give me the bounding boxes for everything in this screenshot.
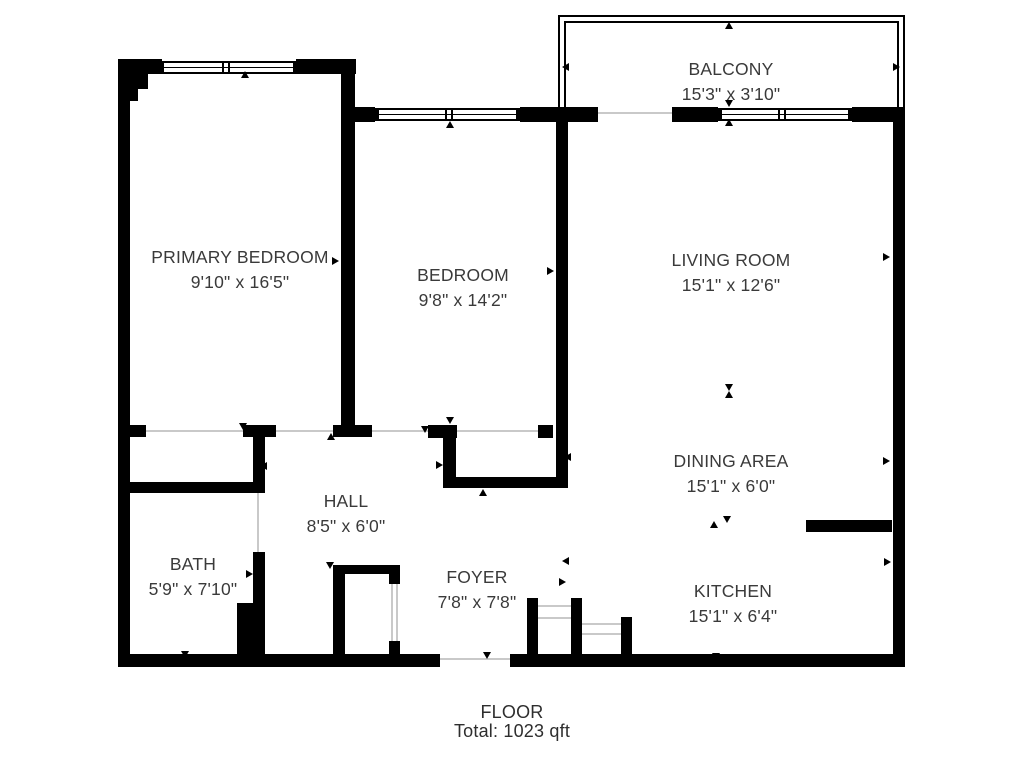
room-name: PRIMARY BEDROOM xyxy=(151,245,328,270)
room-label-primary-bedroom: PRIMARY BEDROOM9'10" x 16'5" xyxy=(151,245,328,295)
door-opening-line xyxy=(440,658,510,660)
door-opening-line xyxy=(396,584,398,641)
room-dimensions: 15'1" x 12'6" xyxy=(672,273,791,298)
window xyxy=(375,108,520,121)
dimension-arrow-left xyxy=(121,257,128,265)
wall-segment xyxy=(571,598,582,660)
window-glass-line xyxy=(378,114,517,116)
window-end-post xyxy=(376,110,379,119)
room-label-bath: BATH5'9" x 7'10" xyxy=(149,552,238,602)
room-dimensions: 5'9" x 7'10" xyxy=(149,577,238,602)
room-dimensions: 9'10" x 16'5" xyxy=(151,270,328,295)
window-mullion xyxy=(451,110,453,119)
door-opening-line xyxy=(391,584,393,641)
room-label-hall: HALL8'5" x 6'0" xyxy=(307,489,386,539)
dimension-arrow-right xyxy=(559,578,566,586)
dimension-arrow-up xyxy=(446,121,454,128)
window-end-post xyxy=(848,110,851,119)
window-mullion xyxy=(228,63,230,72)
room-dimensions: 15'3" x 3'10" xyxy=(682,82,781,107)
dimension-arrow-down xyxy=(239,423,247,430)
room-label-dining-area: DINING AREA15'1" x 6'0" xyxy=(673,449,788,499)
room-dimensions: 7'8" x 7'8" xyxy=(438,590,517,615)
dimension-arrow-left xyxy=(562,63,569,71)
window-mullion xyxy=(222,63,224,72)
window xyxy=(160,61,297,74)
dimension-arrow-left xyxy=(119,568,126,576)
window-end-post xyxy=(161,63,164,72)
door-opening-line xyxy=(598,112,672,114)
window xyxy=(718,108,852,121)
window-end-post xyxy=(293,63,296,72)
wall-segment xyxy=(621,617,632,666)
floor-total: Total: 1023 qft xyxy=(0,722,1024,741)
door-opening-line xyxy=(538,617,571,619)
dimension-arrow-down xyxy=(446,417,454,424)
dimension-arrow-down xyxy=(421,426,429,433)
dimension-arrow-up xyxy=(327,433,335,440)
dimension-arrow-up xyxy=(710,521,718,528)
dimension-arrow-up xyxy=(479,489,487,496)
window-mullion xyxy=(778,110,780,119)
dimension-arrow-down xyxy=(483,652,491,659)
window-mullion xyxy=(784,110,786,119)
dimension-arrow-left xyxy=(564,453,571,461)
dimension-arrow-down xyxy=(725,384,733,391)
wall-segment xyxy=(333,565,400,574)
room-name: BEDROOM xyxy=(417,263,509,288)
room-dimensions: 8'5" x 6'0" xyxy=(307,514,386,539)
wall-segment xyxy=(341,107,375,122)
door-opening-line xyxy=(276,430,333,432)
wall-segment xyxy=(118,59,162,74)
room-name: KITCHEN xyxy=(689,579,778,604)
room-label-living-room: LIVING ROOM15'1" x 12'6" xyxy=(672,248,791,298)
wall-segment xyxy=(118,85,138,101)
room-label-bedroom: BEDROOM9'8" x 14'2" xyxy=(417,263,509,313)
wall-segment xyxy=(538,425,553,438)
door-opening-line xyxy=(146,430,243,432)
room-name: BATH xyxy=(149,552,238,577)
dimension-arrow-right xyxy=(883,253,890,261)
dimension-arrow-right xyxy=(246,570,253,578)
dimension-arrow-down xyxy=(712,653,720,660)
dimension-arrow-left xyxy=(562,557,569,565)
wall-segment xyxy=(443,477,565,488)
room-label-balcony: BALCONY15'3" x 3'10" xyxy=(682,57,781,107)
room-name: BALCONY xyxy=(682,57,781,82)
room-label-kitchen: KITCHEN15'1" x 6'4" xyxy=(689,579,778,629)
wall-segment xyxy=(893,107,905,667)
dimension-arrow-up xyxy=(186,484,194,491)
room-label-foyer: FOYER7'8" x 7'8" xyxy=(438,565,517,615)
door-opening-line xyxy=(372,430,428,432)
wall-segment xyxy=(237,603,265,660)
dimension-arrow-right xyxy=(884,558,891,566)
door-opening-line xyxy=(257,493,259,552)
room-name: LIVING ROOM xyxy=(672,248,791,273)
dimension-arrow-right xyxy=(332,257,339,265)
door-opening-line xyxy=(582,623,621,625)
floor-summary: FLOOR Total: 1023 qft xyxy=(0,703,1024,741)
dimension-arrow-down xyxy=(723,516,731,523)
wall-segment xyxy=(510,654,905,667)
room-dimensions: 15'1" x 6'0" xyxy=(673,474,788,499)
room-dimensions: 9'8" x 14'2" xyxy=(417,288,509,313)
dimension-arrow-up xyxy=(725,22,733,29)
wall-segment xyxy=(389,574,400,584)
door-opening-line xyxy=(538,605,571,607)
dimension-arrow-right xyxy=(547,267,554,275)
dimension-arrow-right xyxy=(436,461,443,469)
window-end-post xyxy=(719,110,722,119)
wall-segment xyxy=(806,520,892,532)
wall-segment xyxy=(333,425,372,437)
room-dimensions: 15'1" x 6'4" xyxy=(689,604,778,629)
room-name: FOYER xyxy=(438,565,517,590)
dimension-arrow-up xyxy=(725,119,733,126)
wall-segment xyxy=(527,598,538,660)
dimension-arrow-left xyxy=(346,271,353,279)
window-mullion xyxy=(445,110,447,119)
dimension-arrow-right xyxy=(883,457,890,465)
dimension-arrow-down xyxy=(181,651,189,658)
door-opening-line xyxy=(457,430,538,432)
dimension-arrow-right xyxy=(893,63,900,71)
window-end-post xyxy=(516,110,519,119)
dimension-arrow-up xyxy=(241,71,249,78)
room-name: HALL xyxy=(307,489,386,514)
dimension-arrow-down xyxy=(326,562,334,569)
wall-segment xyxy=(556,107,568,488)
floor-plan: FLOOR Total: 1023 qft BALCONY15'3" x 3'1… xyxy=(0,0,1024,768)
wall-segment xyxy=(672,107,718,122)
wall-segment xyxy=(333,565,345,666)
dimension-arrow-up xyxy=(725,391,733,398)
door-opening-line xyxy=(582,633,621,635)
wall-segment xyxy=(118,425,146,437)
dimension-arrow-left xyxy=(260,462,267,470)
wall-segment xyxy=(389,641,400,666)
floor-title: FLOOR xyxy=(0,703,1024,722)
room-name: DINING AREA xyxy=(673,449,788,474)
